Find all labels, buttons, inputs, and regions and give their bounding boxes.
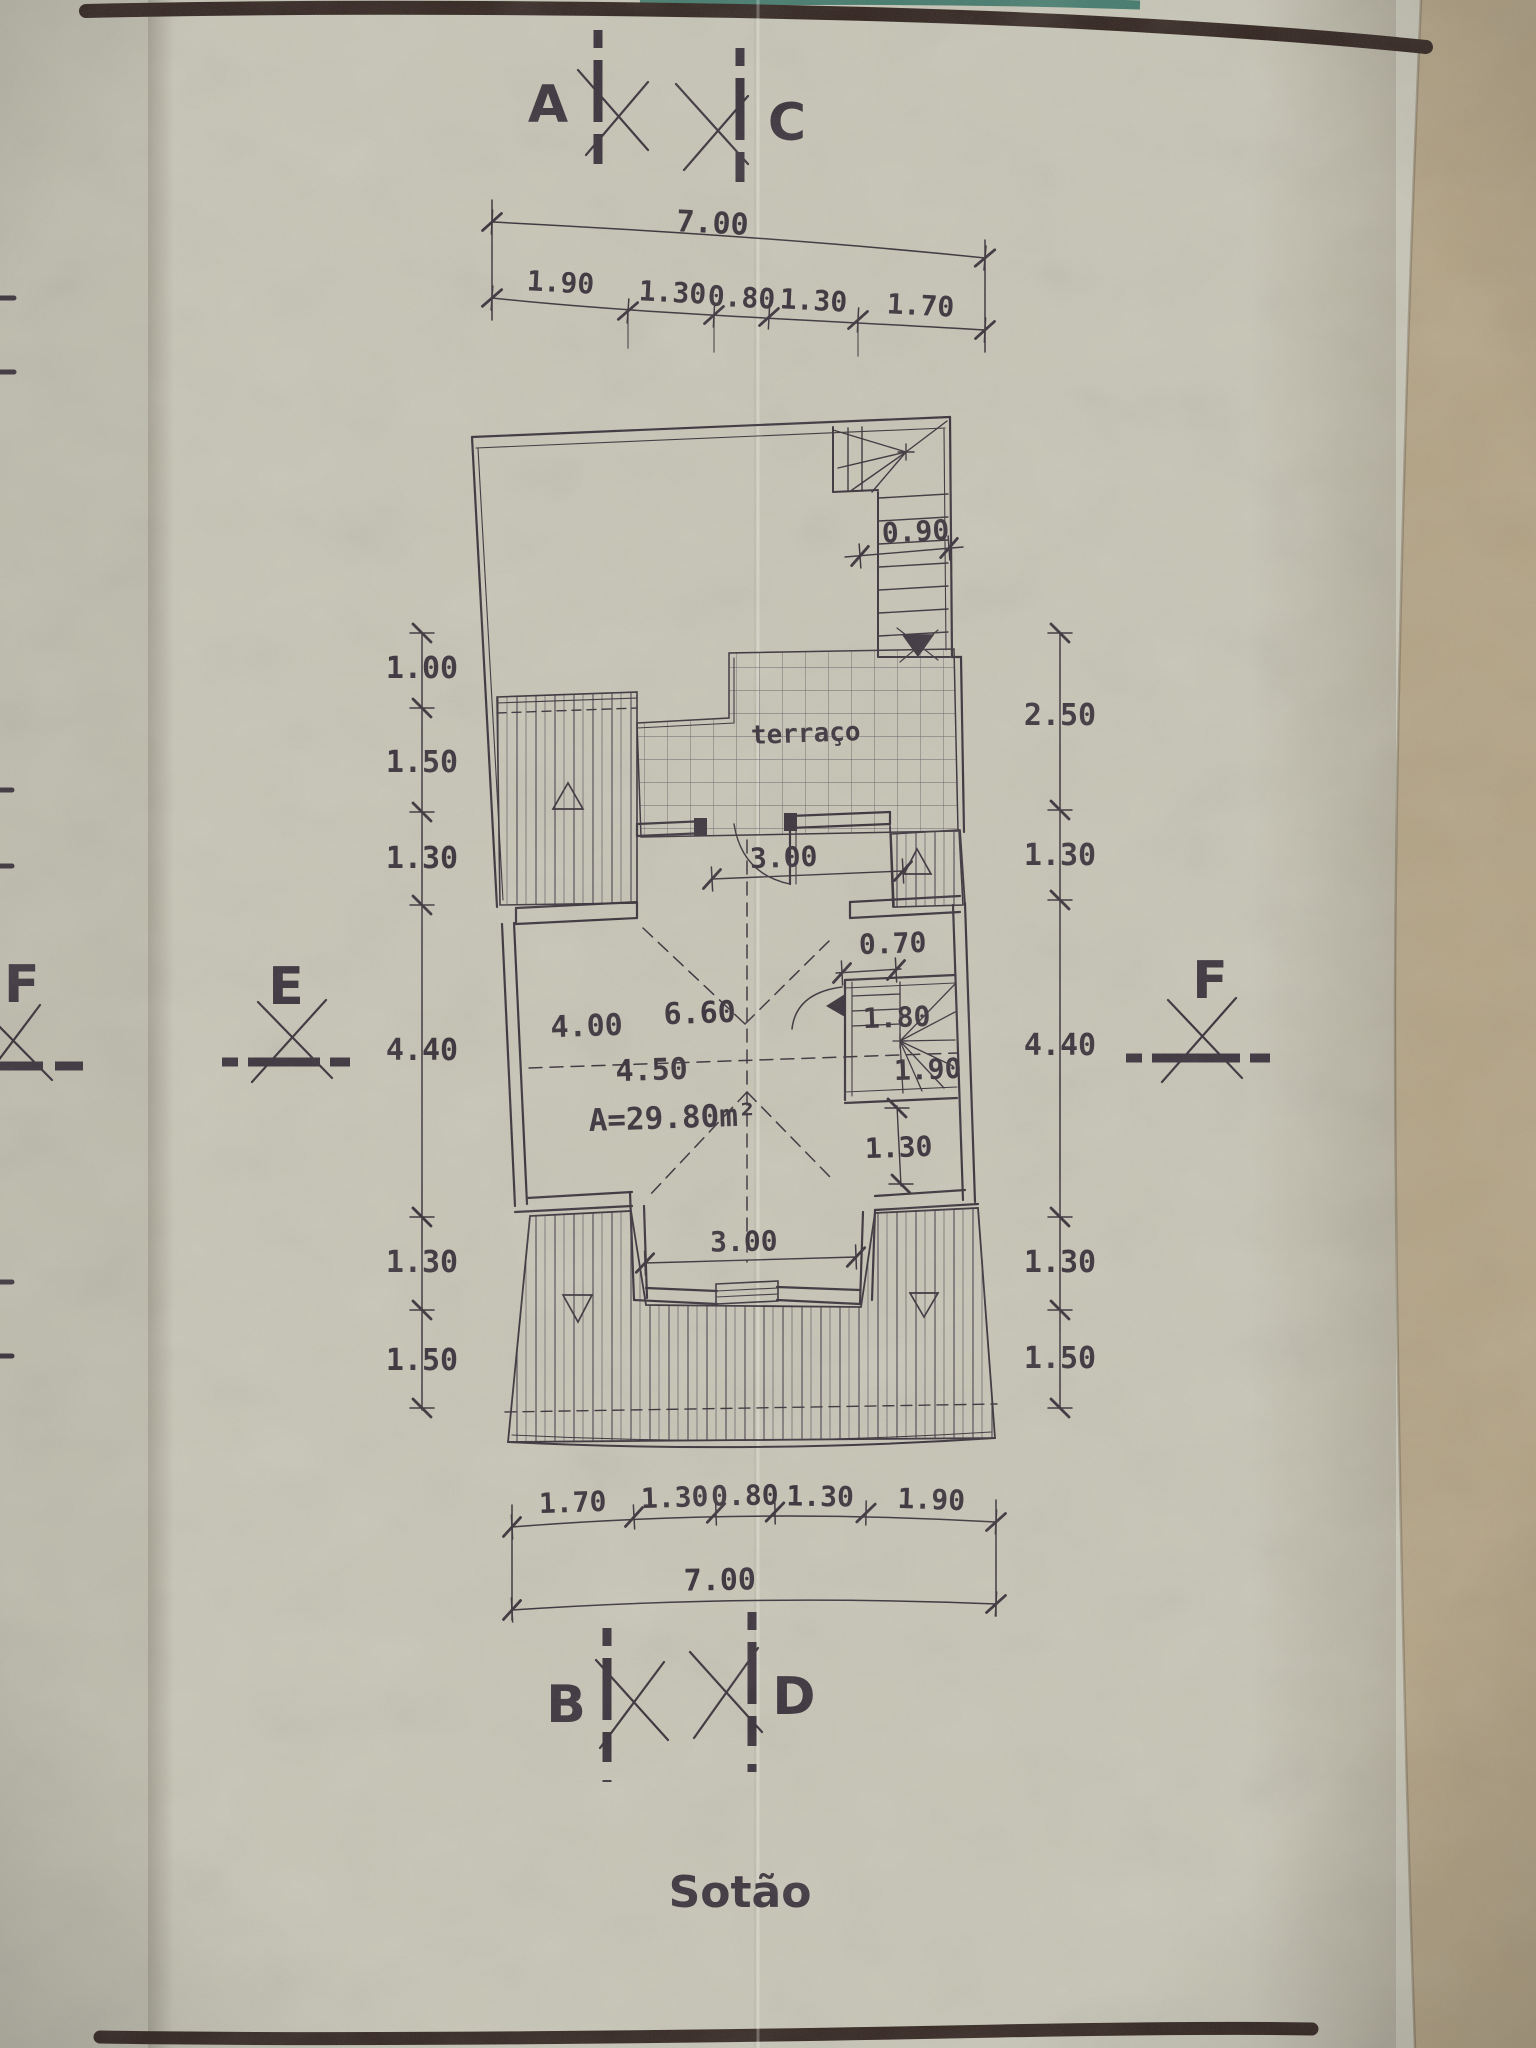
attic-floor-plan-sheet: A C B D E F F 7.00 1.90 1.30 0.80 1.30 1… — [0, 0, 1536, 2048]
photo-vignette — [0, 0, 1536, 2048]
photo-of-architectural-drawing: A C B D E F F 7.00 1.90 1.30 0.80 1.30 1… — [0, 0, 1536, 2048]
photo-texture — [0, 0, 1536, 2048]
